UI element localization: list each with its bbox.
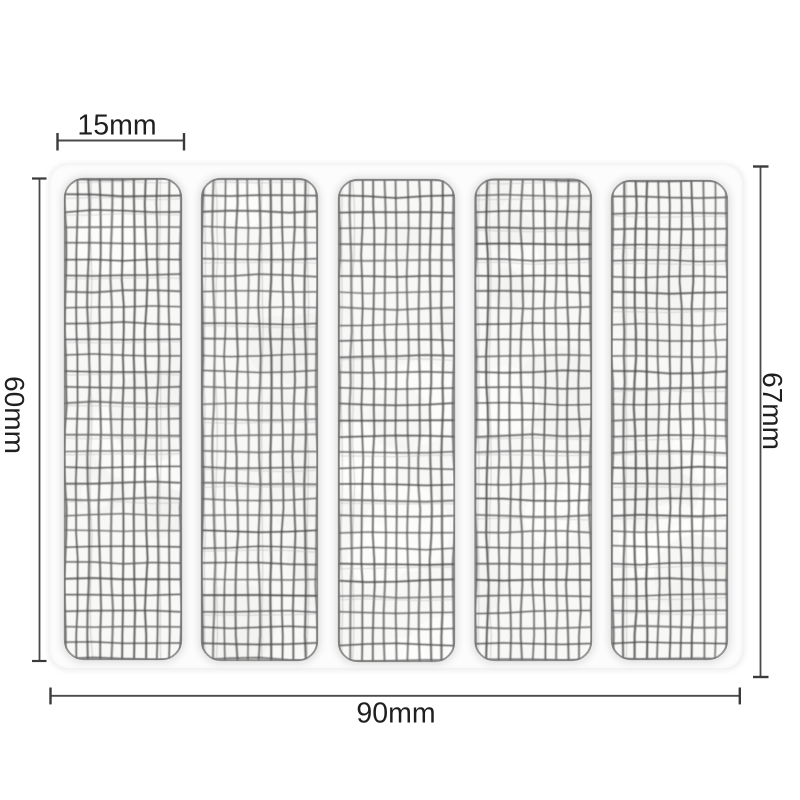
svg-text:90mm: 90mm	[356, 697, 435, 729]
svg-text:60mm: 60mm	[0, 376, 30, 454]
svg-text:15mm: 15mm	[77, 110, 156, 142]
svg-text:67mm: 67mm	[757, 372, 788, 450]
